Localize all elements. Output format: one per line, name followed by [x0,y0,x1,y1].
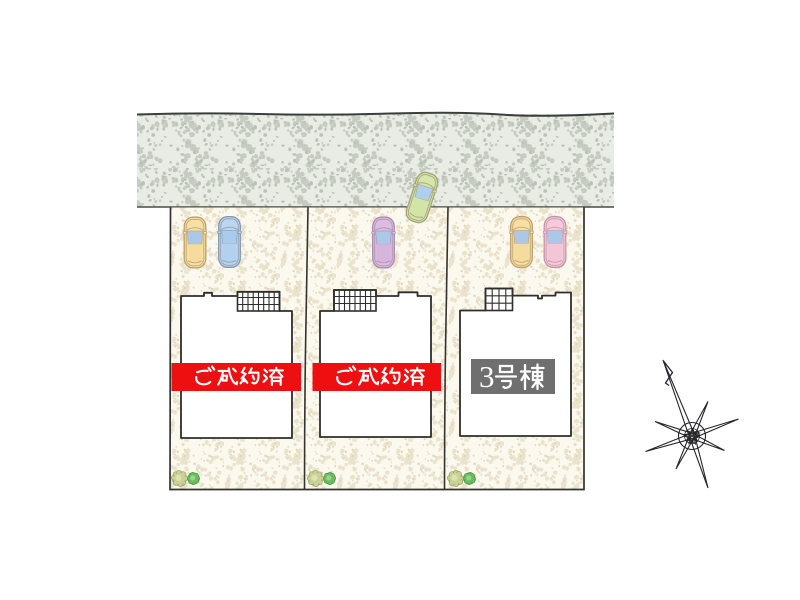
svg-text:3: 3 [479,359,495,394]
